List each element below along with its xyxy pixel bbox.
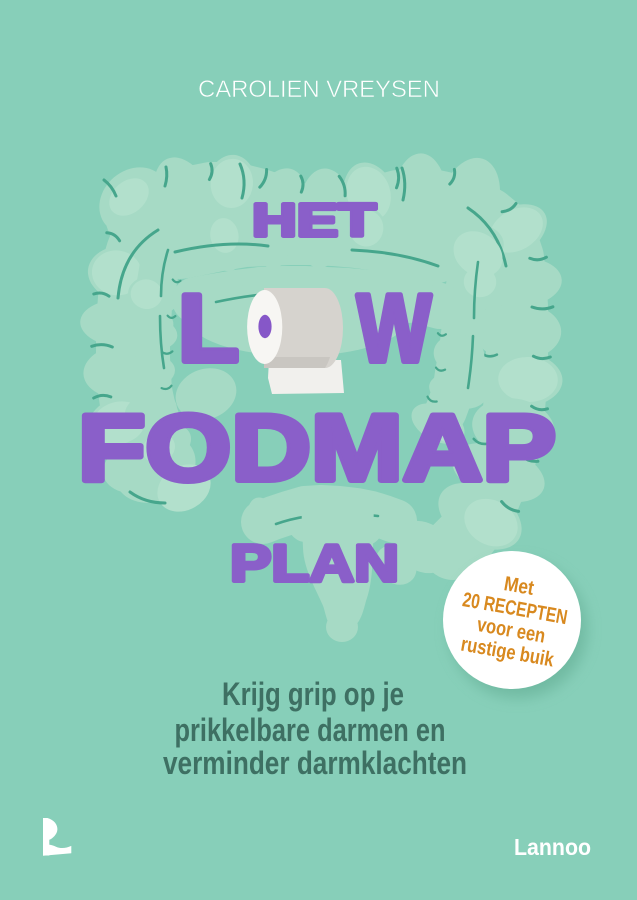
svg-text:L: L (178, 275, 239, 382)
svg-text:verminder darmklachten: verminder darmklachten (163, 745, 467, 781)
svg-text:FODMAP: FODMAP (78, 395, 556, 500)
svg-text:prikkelbare darmen en: prikkelbare darmen en (175, 712, 446, 748)
svg-text:PLAN: PLAN (230, 535, 399, 593)
svg-text:Lannoo: Lannoo (514, 834, 591, 860)
svg-text:Krijg grip op je: Krijg grip op je (222, 676, 404, 712)
svg-text:W: W (357, 275, 431, 382)
svg-text:CAROLIEN VREYSEN: CAROLIEN VREYSEN (198, 76, 440, 103)
svg-text:HET: HET (252, 194, 376, 246)
